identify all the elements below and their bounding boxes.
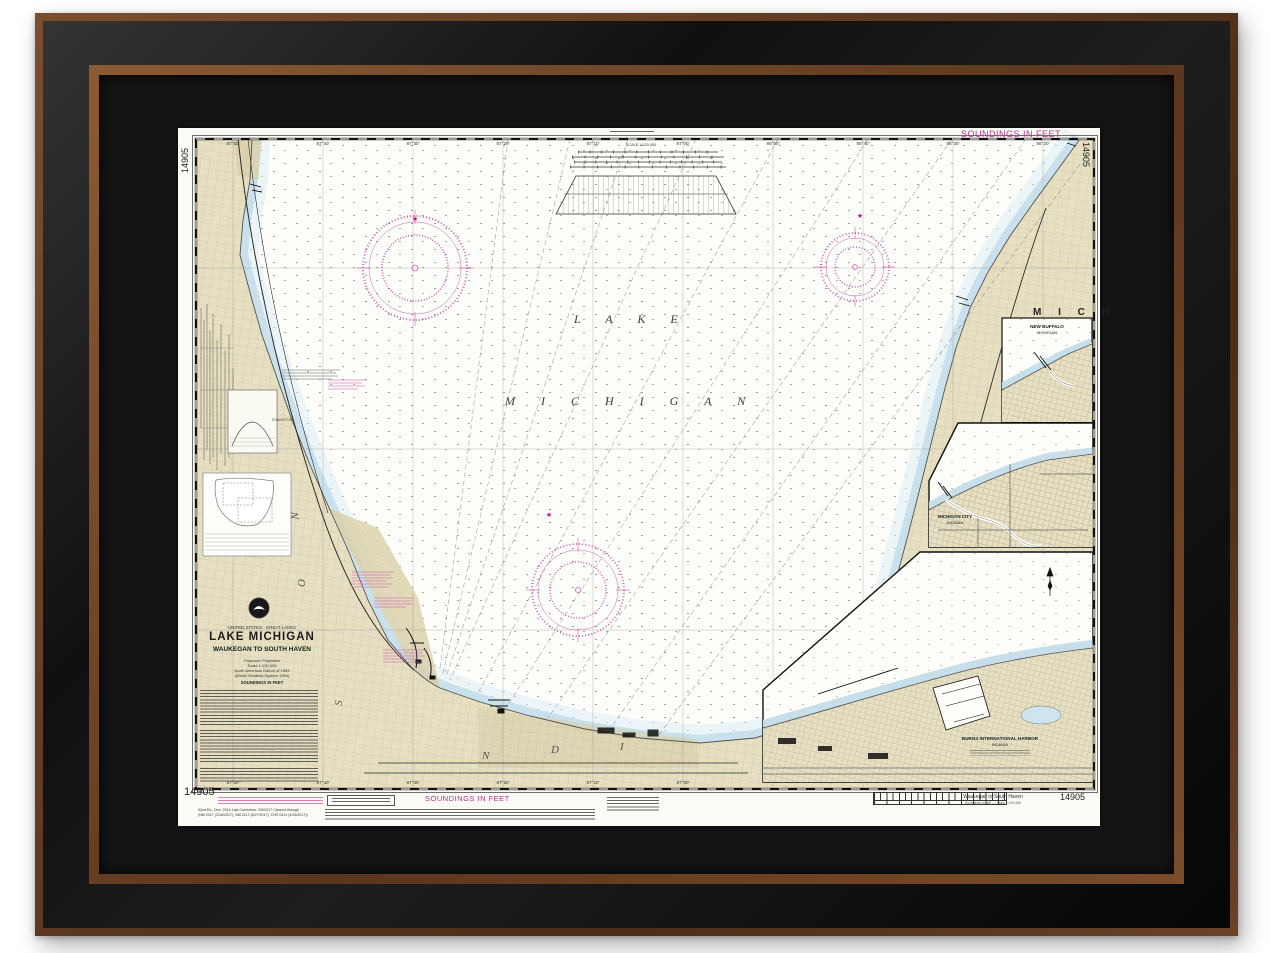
- panel-subtitle: Soundings in feet — Scale 1:120,000: [938, 801, 1048, 805]
- panel-title: Waukegan to South Haven: [938, 794, 1048, 800]
- pod-note-skeleton: [218, 797, 323, 804]
- disclaimer-skeleton: [325, 809, 595, 820]
- state-letter-west: S: [333, 700, 345, 706]
- lon-label: 86°40': [848, 141, 878, 146]
- state-label-michigan: M I C H: [1033, 307, 1116, 318]
- noaa-emblem: [248, 597, 270, 619]
- scale-bar-label: SCALE 1:120,000: [611, 143, 671, 147]
- inset-title-line1: NEW BUFFALO: [1030, 324, 1064, 329]
- svg-text:★: ★: [857, 212, 863, 220]
- top-margin-note-skeleton: [610, 131, 654, 134]
- chart-number-top-left: 14905: [180, 148, 190, 173]
- datum-line2: (World Geodetic System 1984): [202, 673, 322, 678]
- edition-line2: (NM 2017 (2/16/2017), NM 2117 (5/27/2017…: [198, 813, 308, 817]
- lon-label: 86°20': [1028, 141, 1058, 146]
- lon-label: 87°20': [488, 141, 518, 146]
- lake-name-word1: L A K E: [574, 312, 689, 327]
- lon-label: 87°10': [578, 780, 608, 785]
- state-letter-south: N: [482, 750, 489, 762]
- state-letter-south: I: [620, 741, 624, 753]
- publisher-block-skeleton: [607, 797, 659, 811]
- soundings-note-bottom: SOUNDINGS IN FEET: [425, 794, 510, 803]
- edition-line1: 32nd Ed., Dec. 2016 Last Correction: 2/8…: [198, 808, 299, 812]
- lon-label: 87°40': [308, 141, 338, 146]
- lon-label: 86°30': [938, 141, 968, 146]
- photo-of-framed-chart: { "chart": { "number": "14905", "soundin…: [0, 0, 1271, 953]
- chart-number-top-right: 14905: [1081, 142, 1091, 167]
- inset-title-michigan-city: MICHIGAN CITY INDIANA: [930, 514, 980, 525]
- svg-text:★: ★: [546, 511, 552, 519]
- lon-label: 86°50': [758, 141, 788, 146]
- inset-title-line2: INDIANA: [992, 742, 1008, 747]
- plotting-interpolator: [556, 176, 736, 214]
- chart-title: LAKE MICHIGAN: [192, 631, 332, 643]
- state-letter-south: D: [551, 744, 559, 756]
- lon-label: 87°30': [398, 780, 428, 785]
- hydrograph-box: [228, 390, 277, 453]
- chart-subtitle: WAUKEGAN TO SOUTH HAVEN: [192, 646, 332, 653]
- inset-subnote-skeleton: [970, 750, 1030, 756]
- title-block-region: UNITED STATES - GREAT LAKES: [202, 625, 322, 630]
- inset-title-line1: BURNS INTERNATIONAL HARBOR: [962, 736, 1038, 741]
- inset-title-new-buffalo: NEW BUFFALO MICHIGAN: [1004, 324, 1090, 335]
- chart-number-bottom-right: 14905: [1060, 792, 1085, 802]
- lon-label: 87°00': [668, 780, 698, 785]
- soundings-note-top: SOUNDINGS IN FEET: [961, 129, 1061, 139]
- state-letter-west: O: [296, 579, 308, 587]
- inset-title-line2: MICHIGAN: [1037, 330, 1057, 335]
- lon-label: 87°50': [218, 141, 248, 146]
- lon-label: 87°20': [488, 780, 518, 785]
- inset-title-burns-harbor: BURNS INTERNATIONAL HARBOR INDIANA: [948, 736, 1052, 747]
- lon-label: 87°30': [398, 141, 428, 146]
- state-letter-west: N: [290, 512, 302, 519]
- title-block-soundings: SOUNDINGS IN FEET: [202, 680, 322, 685]
- svg-text:★: ★: [412, 215, 418, 223]
- inset-michigan-city: [929, 423, 1093, 547]
- chart-paper: ★★★: [178, 128, 1100, 826]
- lon-label: 87°10': [578, 141, 608, 146]
- lake-name-word2: M I C H I G A N: [505, 394, 757, 409]
- inset-title-line2: INDIANA: [947, 520, 963, 525]
- lon-label: 87°00': [668, 141, 698, 146]
- margin-note-box: [327, 795, 395, 806]
- notes-paragraph-skeleton: [200, 730, 318, 764]
- notes-paragraph-skeleton: [200, 690, 318, 726]
- locator-inset: [203, 473, 291, 556]
- notes-paragraph-skeleton: [200, 768, 318, 782]
- city-label-evanston: EVANSTON: [272, 418, 293, 422]
- chart-number-bottom-left: 14905: [184, 786, 215, 798]
- inset-title-line1: MICHIGAN CITY: [938, 514, 972, 519]
